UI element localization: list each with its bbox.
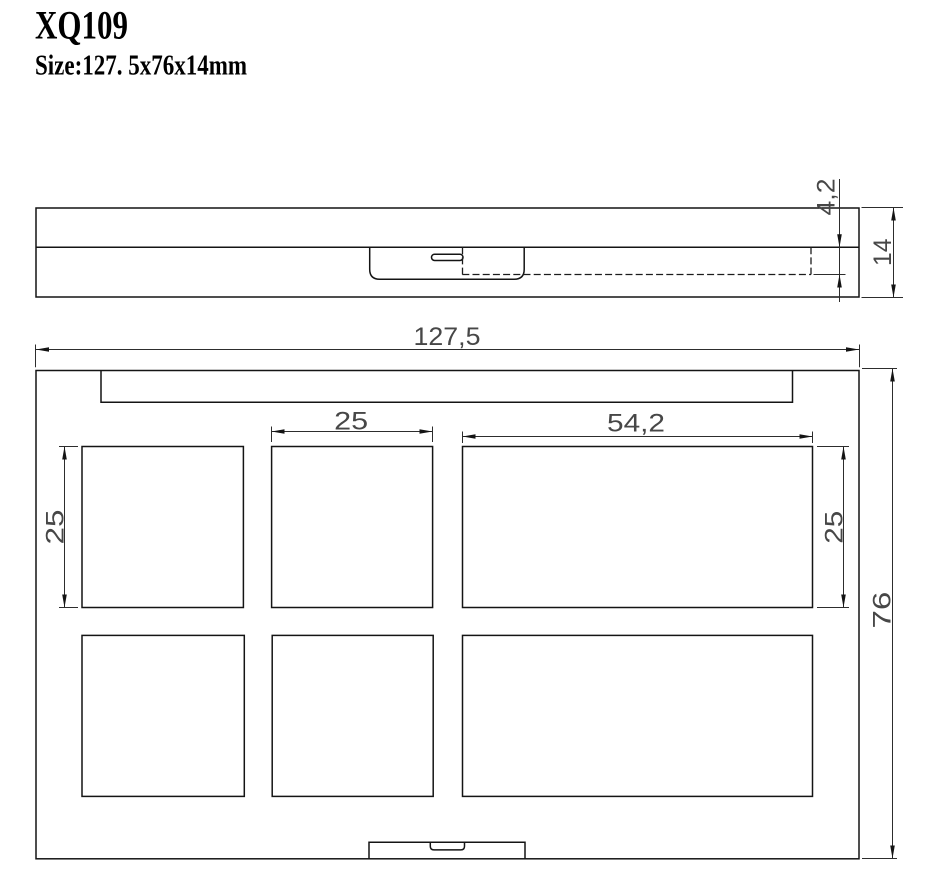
svg-text:76: 76: [868, 592, 896, 629]
svg-text:25: 25: [334, 407, 368, 435]
svg-text:4,2: 4,2: [813, 179, 841, 216]
svg-text:XQ109: XQ109: [35, 3, 128, 48]
svg-text:25: 25: [41, 510, 69, 545]
svg-text:Size:127. 5x76x14mm: Size:127. 5x76x14mm: [35, 50, 247, 82]
svg-text:127,5: 127,5: [414, 323, 481, 351]
svg-text:25: 25: [821, 511, 849, 544]
svg-text:14: 14: [869, 238, 897, 266]
svg-text:54,2: 54,2: [607, 409, 665, 437]
